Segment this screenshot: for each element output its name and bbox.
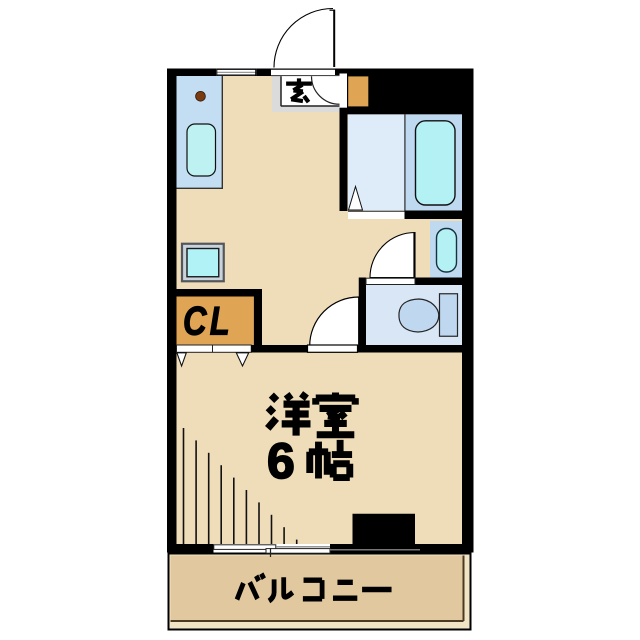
svg-text:CL: CL <box>183 300 233 344</box>
svg-text:6: 6 <box>267 433 295 489</box>
